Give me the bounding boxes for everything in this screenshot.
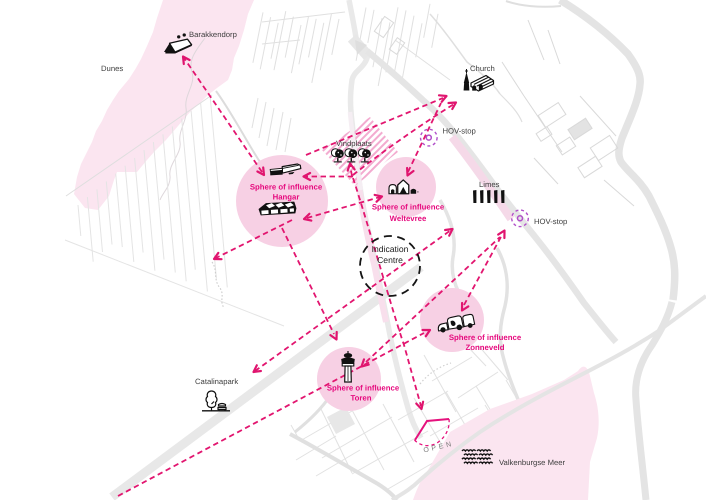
svg-text:Dunes: Dunes: [101, 64, 123, 73]
svg-text:Barakkendorp: Barakkendorp: [189, 30, 237, 39]
svg-text:Toren: Toren: [350, 394, 371, 403]
svg-text:Zonneveld: Zonneveld: [466, 343, 505, 352]
svg-text:Church: Church: [470, 64, 495, 73]
svg-text:Hangar: Hangar: [273, 193, 300, 202]
svg-text:Sphere of influence: Sphere of influence: [449, 333, 522, 342]
svg-text:Vindplaats: Vindplaats: [336, 139, 372, 148]
svg-text:Sphere of influence: Sphere of influence: [327, 384, 400, 393]
svg-text:Centre: Centre: [377, 255, 403, 265]
svg-text:Weltevree: Weltevree: [390, 214, 427, 223]
svg-text:Sphere of influence: Sphere of influence: [372, 203, 445, 212]
svg-text:Limes: Limes: [479, 180, 500, 189]
svg-text:HOV-stop: HOV-stop: [534, 217, 567, 226]
svg-text:HOV-stop: HOV-stop: [443, 127, 476, 136]
svg-text:Sphere of influence: Sphere of influence: [250, 183, 323, 192]
svg-text:Indication: Indication: [372, 244, 409, 254]
svg-text:Catalinapark: Catalinapark: [195, 377, 238, 386]
svg-text:Valkenburgse Meer: Valkenburgse Meer: [499, 458, 566, 467]
